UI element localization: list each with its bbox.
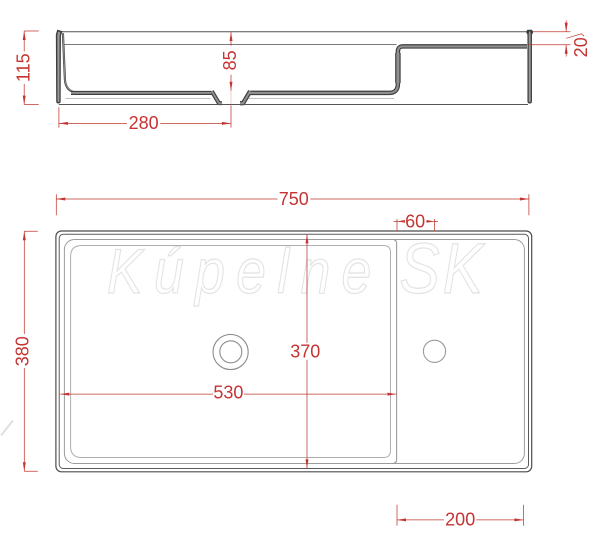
svg-text:750: 750 [279,189,309,209]
svg-text:SK: SK [400,228,487,308]
svg-text:370: 370 [290,341,320,361]
svg-text:85: 85 [220,50,240,70]
svg-text:60: 60 [405,212,425,232]
svg-text:530: 530 [213,383,243,403]
svg-text:280: 280 [129,113,159,133]
svg-text:Kúpelne: Kúpelne [107,237,383,307]
svg-text:380: 380 [13,336,33,366]
svg-text:20: 20 [571,37,591,57]
svg-text:115: 115 [13,53,33,82]
svg-text:200: 200 [445,510,475,530]
